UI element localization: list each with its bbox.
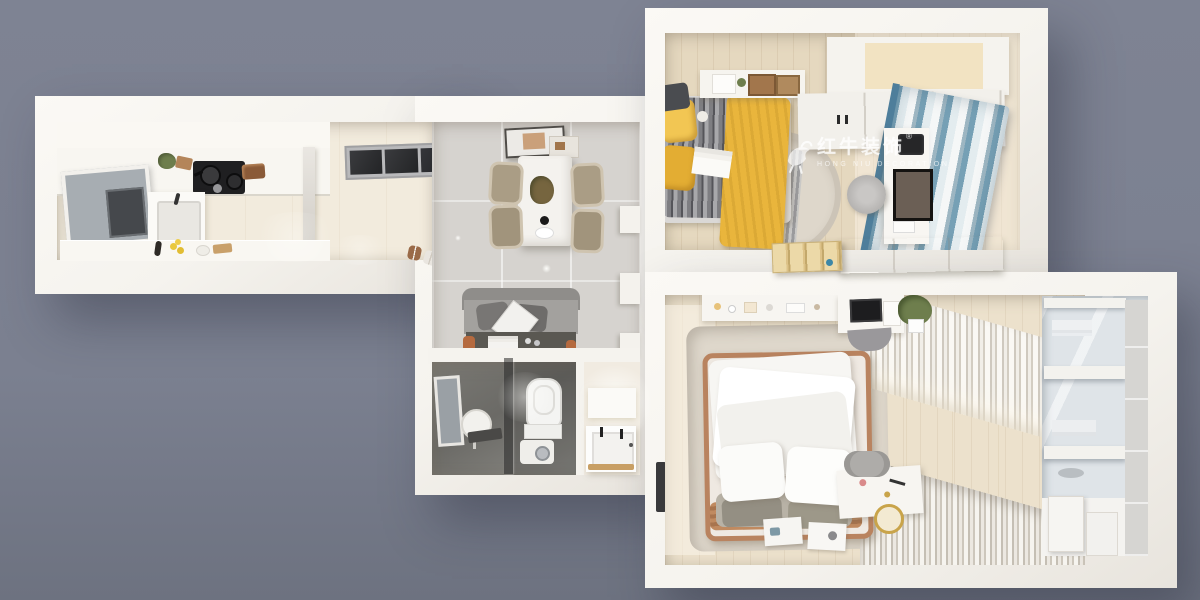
downlight: [455, 235, 461, 241]
kitchen-glow: [250, 212, 340, 262]
cup-dot: [714, 303, 721, 310]
washer-door: [535, 446, 550, 461]
watermark: 红牛装饰 ® HONG NIU DECORATION: [784, 132, 954, 184]
kitchen-upper-cabinets: [57, 122, 330, 149]
downlight: [542, 264, 551, 273]
teddy-toy: [697, 111, 708, 122]
black-tablet: [850, 298, 883, 322]
books-on-bed: [691, 146, 732, 178]
pan-icon: [226, 173, 243, 190]
towel-rolls: [844, 451, 890, 477]
bowl: [196, 245, 210, 256]
washing-machine: [520, 440, 554, 464]
door-handle: [837, 115, 840, 124]
closet-shelf: [1044, 446, 1126, 459]
watermark-brand-en: HONG NIU DECORATION: [817, 161, 950, 168]
mug: [525, 338, 531, 344]
dining-chair: [488, 161, 524, 206]
cosmetic-dot: [859, 479, 866, 486]
closet-storage-box: [1048, 496, 1084, 552]
white-box: [712, 74, 736, 94]
cup-dot: [728, 305, 736, 313]
entry-glow: [330, 235, 390, 265]
wood-tray-edge: [588, 464, 634, 470]
closet-storage-box: [1086, 512, 1118, 556]
tray-small: [786, 303, 805, 313]
bathroom-window: [434, 375, 465, 447]
wall-shelf-cups: [702, 295, 838, 321]
cup-dot: [766, 304, 773, 311]
glass-panel: [385, 148, 418, 173]
closet-shelf: [1044, 366, 1126, 379]
black-bowl: [540, 216, 549, 225]
built-in-oven: [106, 187, 148, 238]
toilet-tank: [524, 424, 562, 439]
dining-chair: [488, 204, 524, 249]
wall-shelf: [620, 273, 640, 304]
photo-frame: [748, 74, 776, 96]
wall-shelf: [620, 206, 640, 233]
bottle-dot: [629, 443, 633, 447]
faucet-icon: [600, 427, 603, 437]
basin: [592, 432, 634, 468]
watermark-brand-zh: 红牛装饰: [817, 132, 905, 159]
gold-tray: [874, 504, 904, 534]
decor-dot: [555, 142, 565, 150]
mat-print: [828, 531, 837, 540]
closet-linen-stack: [1052, 420, 1096, 432]
side-shelf: [549, 136, 579, 158]
bread-tray: [242, 163, 266, 180]
dining-chair: [570, 162, 605, 208]
closet-tiled-wall: [1125, 300, 1148, 556]
desk-items: [893, 221, 915, 233]
pan-icon: [200, 165, 221, 186]
watermark-registered: ®: [906, 132, 912, 141]
dish: [535, 227, 554, 239]
master-floor: [665, 295, 1085, 565]
lemon: [175, 239, 181, 245]
wardrobe-cream-panel: [865, 43, 983, 89]
divider-cabinet: [840, 237, 1004, 274]
plant-pot: [908, 319, 924, 333]
closet-top-frame: [1044, 298, 1126, 308]
plant-kitchen: [158, 153, 176, 169]
faucet-icon: [620, 429, 623, 439]
bedside-mat: [763, 517, 803, 547]
mat-print: [770, 527, 781, 536]
table-centerpiece: [530, 176, 554, 204]
dining-chair: [570, 208, 605, 253]
mug: [534, 340, 540, 346]
door-handle: [845, 115, 848, 124]
bath-light-glow: [495, 372, 555, 422]
white-pillow: [718, 441, 787, 502]
mirror-shelf: [588, 388, 636, 418]
kitchen-window: [61, 164, 155, 249]
bedside-mat: [807, 522, 846, 551]
loft-stairs: [771, 241, 842, 273]
glass-panel: [350, 150, 383, 175]
photo-frame: [776, 75, 800, 96]
cosmetic-dot: [884, 491, 890, 497]
closet-basket: [1058, 468, 1084, 478]
pot-icon: [213, 184, 222, 193]
apartment-render-stage: 红牛装饰 ® HONG NIU DECORATION: [0, 0, 1200, 600]
lemon: [177, 247, 184, 254]
jar: [744, 302, 757, 313]
teal-object: [826, 259, 833, 266]
art-photo: [523, 132, 546, 149]
bull-icon: [784, 136, 814, 176]
cup-dot: [814, 304, 820, 310]
plant-dot: [737, 78, 746, 87]
closet-linen-stack: [1052, 320, 1092, 330]
makeup-brush: [889, 479, 905, 486]
headboard: [665, 82, 691, 112]
